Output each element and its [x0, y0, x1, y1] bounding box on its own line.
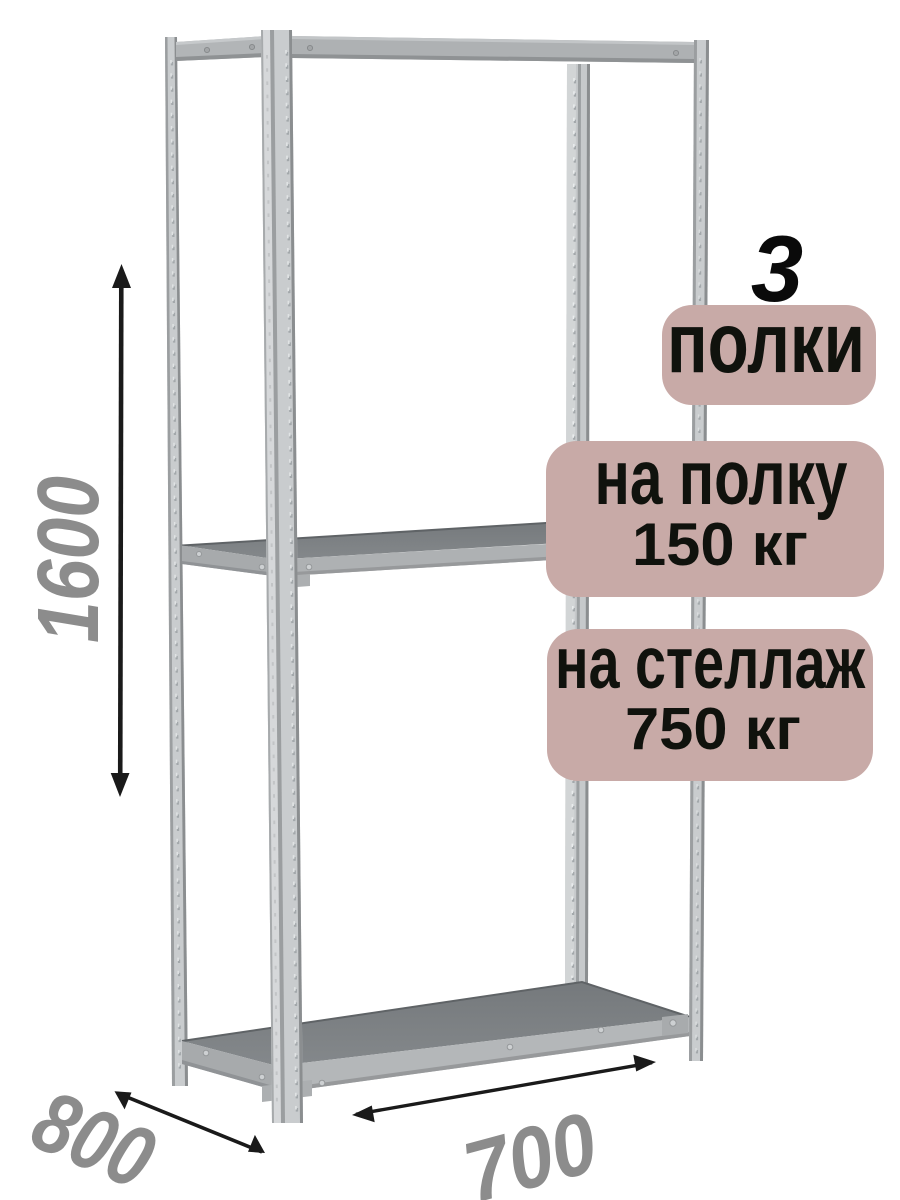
- svg-text:на стеллаж: на стеллаж: [555, 623, 866, 704]
- svg-text:на полку: на полку: [595, 435, 848, 521]
- svg-text:полки: полки: [667, 296, 865, 391]
- svg-text:750 кг: 750 кг: [625, 696, 801, 762]
- svg-text:150 кг: 150 кг: [632, 511, 808, 578]
- svg-text:1600: 1600: [20, 476, 117, 643]
